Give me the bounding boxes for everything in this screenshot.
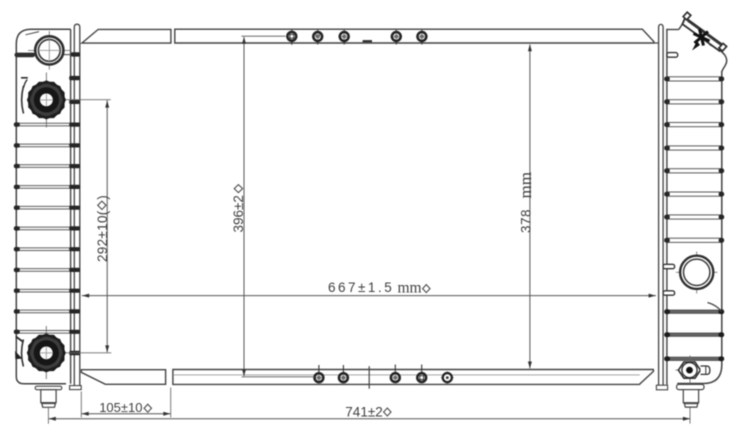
svg-text:378: 378 bbox=[519, 209, 534, 233]
svg-text:667±1.5: 667±1.5 bbox=[328, 280, 394, 295]
svg-text:105±10: 105±10 bbox=[99, 400, 142, 415]
svg-text:mm: mm bbox=[516, 172, 535, 198]
svg-text:292±10(: 292±10( bbox=[95, 210, 110, 262]
svg-text:741±2: 741±2 bbox=[345, 404, 382, 419]
svg-text:396±2: 396±2 bbox=[231, 195, 246, 232]
svg-text:): ) bbox=[95, 195, 110, 200]
svg-text:mm: mm bbox=[398, 280, 422, 297]
